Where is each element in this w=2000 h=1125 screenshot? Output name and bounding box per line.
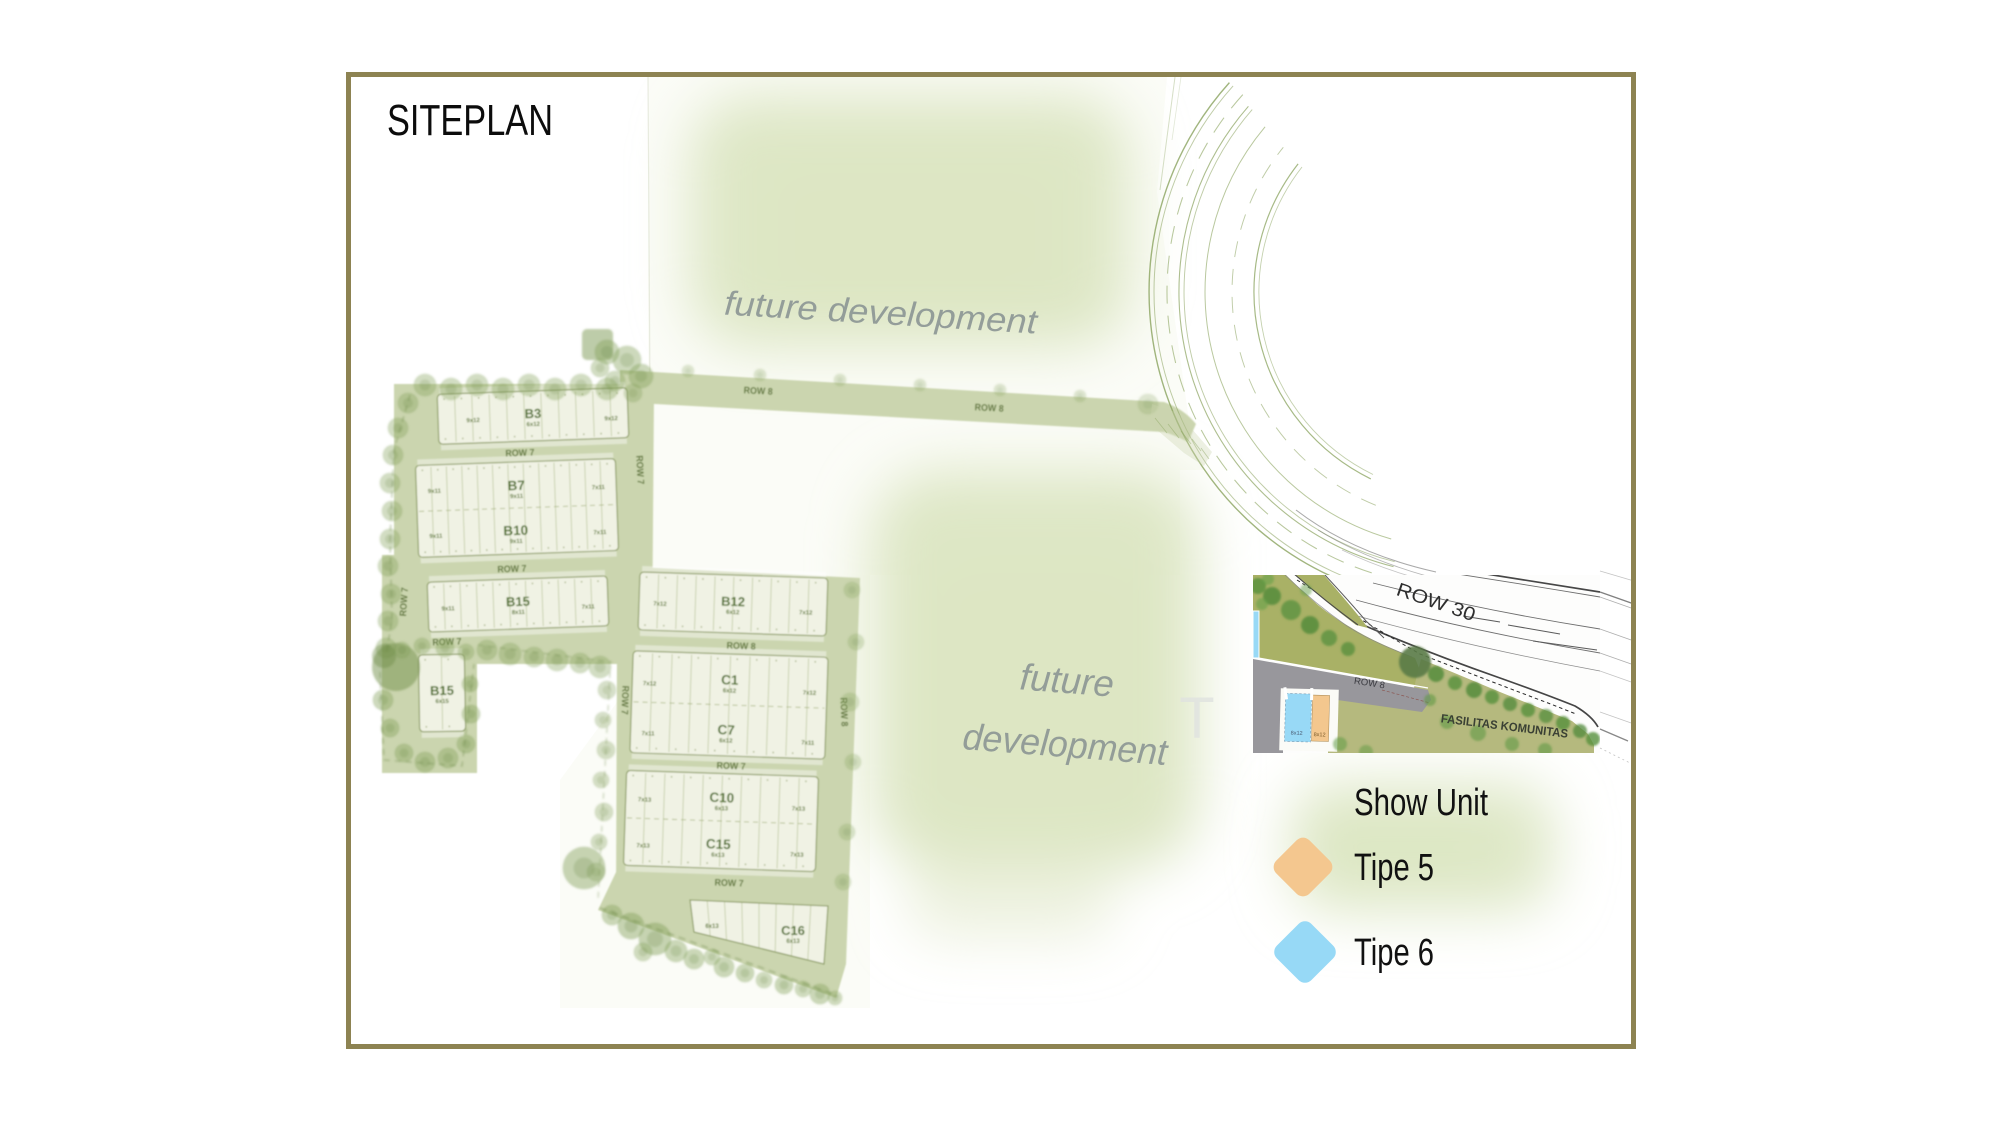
svg-text:ROW 7: ROW 7 [497, 563, 526, 575]
svg-text:Tipe 6: Tipe 6 [1354, 932, 1434, 974]
svg-text:Show Unit: Show Unit [1354, 782, 1488, 824]
svg-text:6x13: 6x13 [715, 806, 729, 812]
svg-text:Tipe 5: Tipe 5 [1354, 847, 1434, 889]
svg-text:9x12: 9x12 [604, 416, 618, 422]
svg-text:6x12: 6x12 [719, 738, 733, 744]
svg-text:6x15: 6x15 [435, 699, 449, 705]
svg-text:6x12: 6x12 [723, 688, 737, 694]
svg-text:B3: B3 [524, 406, 541, 422]
svg-text:ROW 7: ROW 7 [714, 877, 743, 889]
svg-text:7x12: 7x12 [799, 610, 813, 616]
svg-text:C16: C16 [781, 923, 805, 938]
svg-text:ROW 7: ROW 7 [633, 455, 646, 485]
svg-text:7x13: 7x13 [636, 843, 650, 849]
svg-text:7x13: 7x13 [790, 852, 804, 858]
svg-text:C10: C10 [709, 790, 734, 806]
svg-text:future: future [1019, 656, 1116, 704]
svg-text:7x11: 7x11 [593, 530, 607, 536]
svg-text:8x12: 8x12 [1314, 732, 1326, 738]
svg-text:6x12: 6x12 [527, 422, 541, 428]
svg-text:8x12: 8x12 [1291, 730, 1303, 736]
svg-text:7x12: 7x12 [803, 690, 817, 696]
svg-text:7x13: 7x13 [638, 797, 652, 803]
svg-text:B15: B15 [506, 594, 530, 610]
svg-text:9x12: 9x12 [466, 418, 480, 424]
svg-text:B12: B12 [721, 594, 745, 610]
svg-text:6x13: 6x13 [786, 939, 800, 945]
svg-text:ROW 8: ROW 8 [726, 640, 755, 652]
svg-text:7x11: 7x11 [592, 485, 606, 491]
svg-text:C1: C1 [721, 672, 739, 688]
svg-text:B10: B10 [503, 523, 528, 539]
svg-text:ROW 8: ROW 8 [743, 385, 773, 398]
svg-text:B15: B15 [430, 683, 454, 698]
svg-text:9x11: 9x11 [429, 534, 443, 540]
svg-text:9x11: 9x11 [510, 494, 524, 500]
svg-text:7x13: 7x13 [792, 806, 806, 812]
svg-text:7x12: 7x12 [653, 601, 667, 607]
svg-text:ROW 7: ROW 7 [716, 760, 745, 772]
svg-text:6x12: 6x12 [726, 610, 740, 616]
svg-text:9x11: 9x11 [510, 539, 524, 545]
svg-text:ROW 7: ROW 7 [618, 685, 630, 714]
svg-text:7x11: 7x11 [582, 604, 596, 610]
svg-text:6x13: 6x13 [711, 852, 725, 858]
svg-text:ROW 8: ROW 8 [974, 402, 1004, 415]
svg-text:7x11: 7x11 [801, 740, 815, 746]
svg-text:7x11: 7x11 [641, 731, 655, 737]
svg-text:9x11: 9x11 [442, 606, 456, 612]
svg-text:9x11: 9x11 [428, 489, 442, 495]
svg-text:ROW 7: ROW 7 [505, 447, 534, 459]
svg-text:C15: C15 [706, 836, 732, 852]
svg-text:C7: C7 [717, 722, 735, 738]
svg-text:B7: B7 [507, 478, 525, 494]
svg-text:T: T [1179, 686, 1214, 751]
svg-text:7x12: 7x12 [643, 681, 657, 687]
svg-text:8x11: 8x11 [512, 610, 526, 616]
svg-text:6x13: 6x13 [705, 924, 719, 930]
svg-text:SITEPLAN: SITEPLAN [387, 96, 553, 145]
